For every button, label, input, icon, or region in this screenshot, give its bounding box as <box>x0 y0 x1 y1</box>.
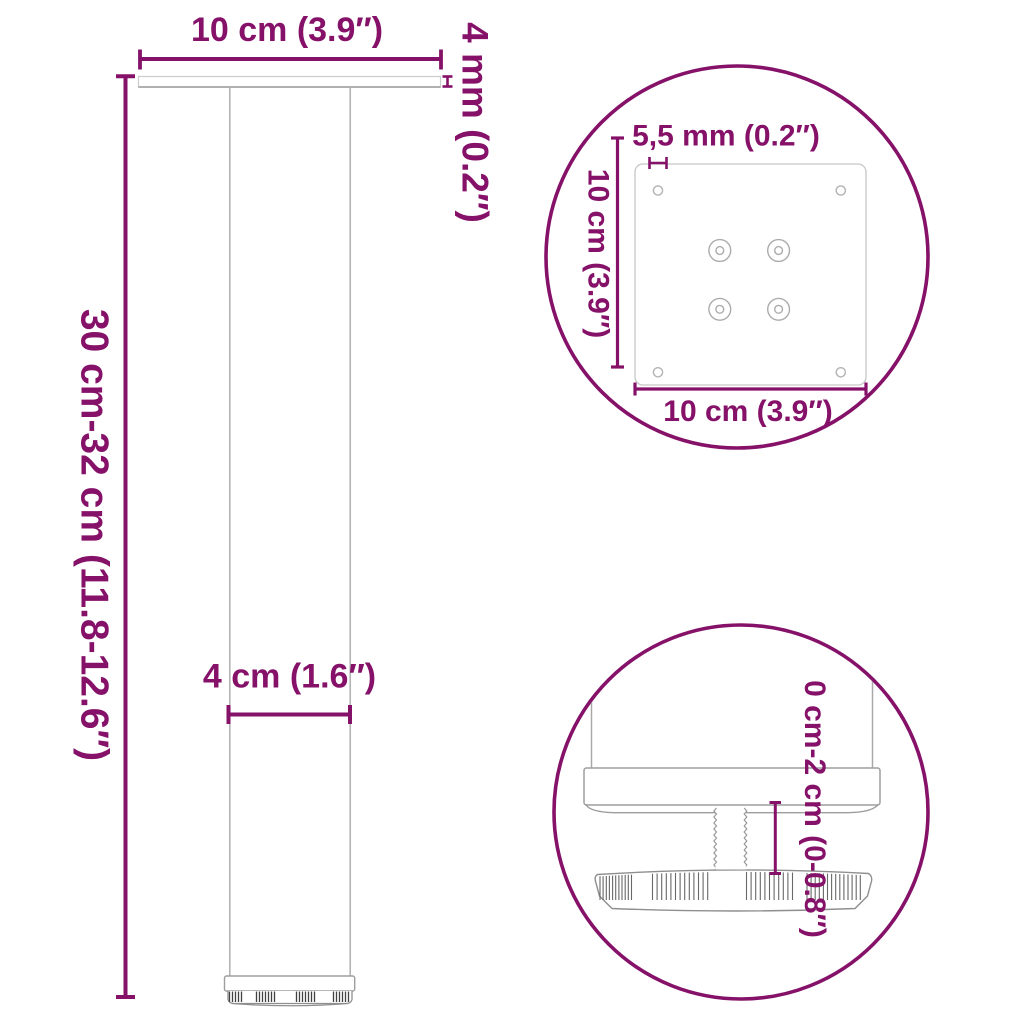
svg-text:4 cm (1.6″): 4 cm (1.6″) <box>203 658 376 696</box>
svg-text:10 cm (3.9″): 10 cm (3.9″) <box>663 395 832 428</box>
svg-text:10 cm (3.9″): 10 cm (3.9″) <box>191 11 383 49</box>
svg-text:10 cm (3.9″): 10 cm (3.9″) <box>581 169 614 338</box>
svg-text:0 cm-2 cm (0-0.8″): 0 cm-2 cm (0-0.8″) <box>798 680 831 938</box>
svg-text:30 cm-32 cm (11.8-12.6″): 30 cm-32 cm (11.8-12.6″) <box>73 309 116 761</box>
svg-text:4 mm (0.2″): 4 mm (0.2″) <box>455 22 496 223</box>
svg-text:5,5 mm (0.2″): 5,5 mm (0.2″) <box>632 120 820 153</box>
